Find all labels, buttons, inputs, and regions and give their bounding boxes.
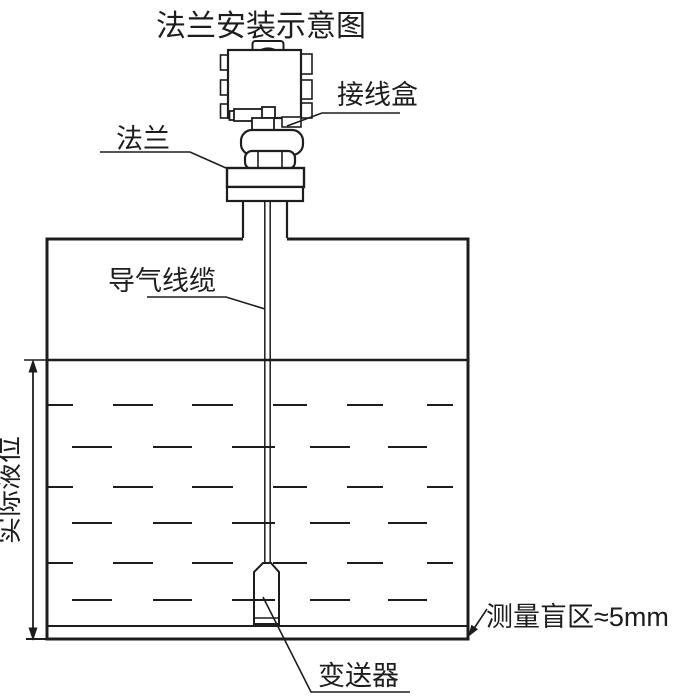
terminal-stub <box>262 107 275 118</box>
actual-level-label: 实际液位 <box>0 436 24 544</box>
blind-zone-label: 测量盲区≈5mm <box>486 602 669 632</box>
probe <box>254 201 279 624</box>
housing-tab-left-3 <box>221 104 229 118</box>
liquid-dash-rows-b <box>72 447 427 600</box>
flange-leader <box>100 152 226 168</box>
flange-plate <box>227 168 304 187</box>
air-cable-leader <box>147 297 265 309</box>
diagram-page: 法兰安装示意图 接线盒 法兰 导气线缆 变送器 测量盲区≈5mm 实际液位 <box>0 0 700 700</box>
level-dimension <box>24 359 46 641</box>
diagram-title: 法兰安装示意图 <box>156 10 366 43</box>
flange-collar <box>227 187 303 201</box>
liquid-dashes <box>47 405 453 600</box>
transmitter-label: 变送器 <box>318 661 399 691</box>
housing-tab-right-1 <box>301 54 312 74</box>
air-cable-label: 导气线缆 <box>108 266 216 296</box>
housing-tab-left-1 <box>221 55 229 70</box>
junction-box-label: 接线盒 <box>337 80 418 110</box>
housing-tab-left-2 <box>221 80 229 95</box>
flange-installation-diagram: 法兰安装示意图 接线盒 法兰 导气线缆 变送器 测量盲区≈5mm 实际液位 <box>0 0 700 700</box>
tank-outline <box>47 239 468 639</box>
flange-label: 法兰 <box>116 124 170 154</box>
housing-tab-right-2 <box>301 80 312 99</box>
liquid-dash-rows-a <box>47 405 453 563</box>
transmitter-weight <box>254 563 279 624</box>
air-cable-line <box>265 201 270 563</box>
hex-nut <box>245 151 295 169</box>
dimension-arrow-up-icon <box>29 359 38 373</box>
housing-tab-right-3 <box>301 103 312 118</box>
